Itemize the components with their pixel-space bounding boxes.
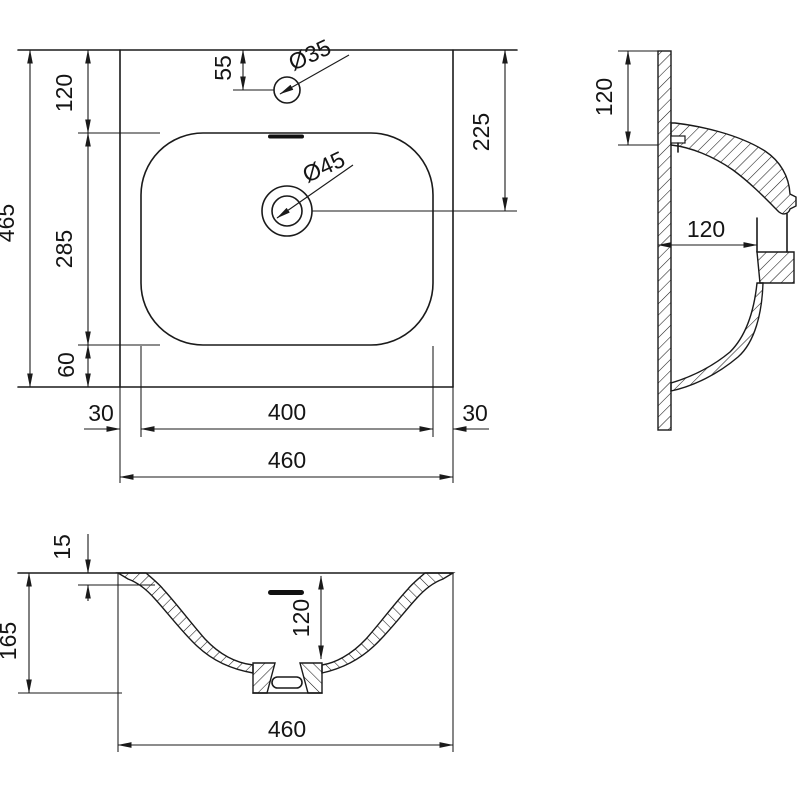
- dim-plan-basin-to-bottom: 60: [53, 352, 79, 378]
- dim-front-total-height: 165: [0, 622, 21, 660]
- dim-side-basin-depth: 120: [687, 216, 725, 242]
- dim-plan-top-to-basin: 120: [51, 74, 77, 112]
- drain-outlet-slot: [272, 677, 302, 688]
- dim-front-rim-thickness: 15: [49, 534, 75, 560]
- front-view: 15 165 120 460: [0, 534, 453, 752]
- basin-bowl-outline: [141, 133, 433, 345]
- dim-side-mount-height: 120: [591, 78, 617, 116]
- front-dimension-lines: [18, 534, 453, 745]
- dim-plan-top-to-drain: 225: [468, 113, 494, 151]
- bowl-wall-section-right: [322, 573, 453, 673]
- drain-box-right-wall: [300, 663, 322, 693]
- mounting-slot: [671, 136, 685, 143]
- plan-dimension-labels: 465 120 285 60 55 225 Ø35 Ø45 30 400 30 …: [0, 34, 494, 473]
- rim-edge-block-section: [757, 252, 794, 283]
- dim-plan-total-width: 460: [268, 447, 306, 473]
- rim-flange-section: [671, 123, 796, 214]
- mounting-wall-section: [658, 51, 671, 430]
- dim-plan-margin-right: 30: [462, 400, 488, 426]
- dim-faucet-hole-diameter: Ø35: [284, 34, 334, 76]
- overflow-slot-plan: [268, 135, 304, 139]
- dim-plan-total-height: 465: [0, 204, 19, 242]
- dim-plan-basin-length: 285: [51, 230, 77, 268]
- dim-front-total-width: 460: [268, 716, 306, 742]
- drain-box-left-wall: [253, 663, 275, 693]
- overflow-slot-front: [268, 590, 304, 595]
- bowl-wall-section-side: [671, 283, 763, 391]
- technical-drawing-page: 465 120 285 60 55 225 Ø35 Ø45 30 400 30 …: [0, 0, 800, 800]
- dim-plan-margin-left: 30: [88, 400, 114, 426]
- side-view: 120 120: [591, 51, 796, 430]
- front-geometry: [18, 573, 453, 752]
- dim-front-bowl-depth: 120: [288, 599, 314, 637]
- dim-drain-diameter: Ø45: [298, 146, 348, 188]
- dim-plan-faucet-offset: 55: [210, 55, 236, 81]
- bowl-wall-section-left: [118, 573, 253, 673]
- dim-plan-basin-width: 400: [268, 399, 306, 425]
- plan-outline: [18, 50, 517, 387]
- plan-view: 465 120 285 60 55 225 Ø35 Ø45 30 400 30 …: [0, 34, 517, 483]
- side-geometry: [658, 51, 796, 430]
- front-dimension-labels: 15 165 120 460: [0, 534, 314, 742]
- washbasin-drawing: 465 120 285 60 55 225 Ø35 Ø45 30 400 30 …: [0, 0, 800, 800]
